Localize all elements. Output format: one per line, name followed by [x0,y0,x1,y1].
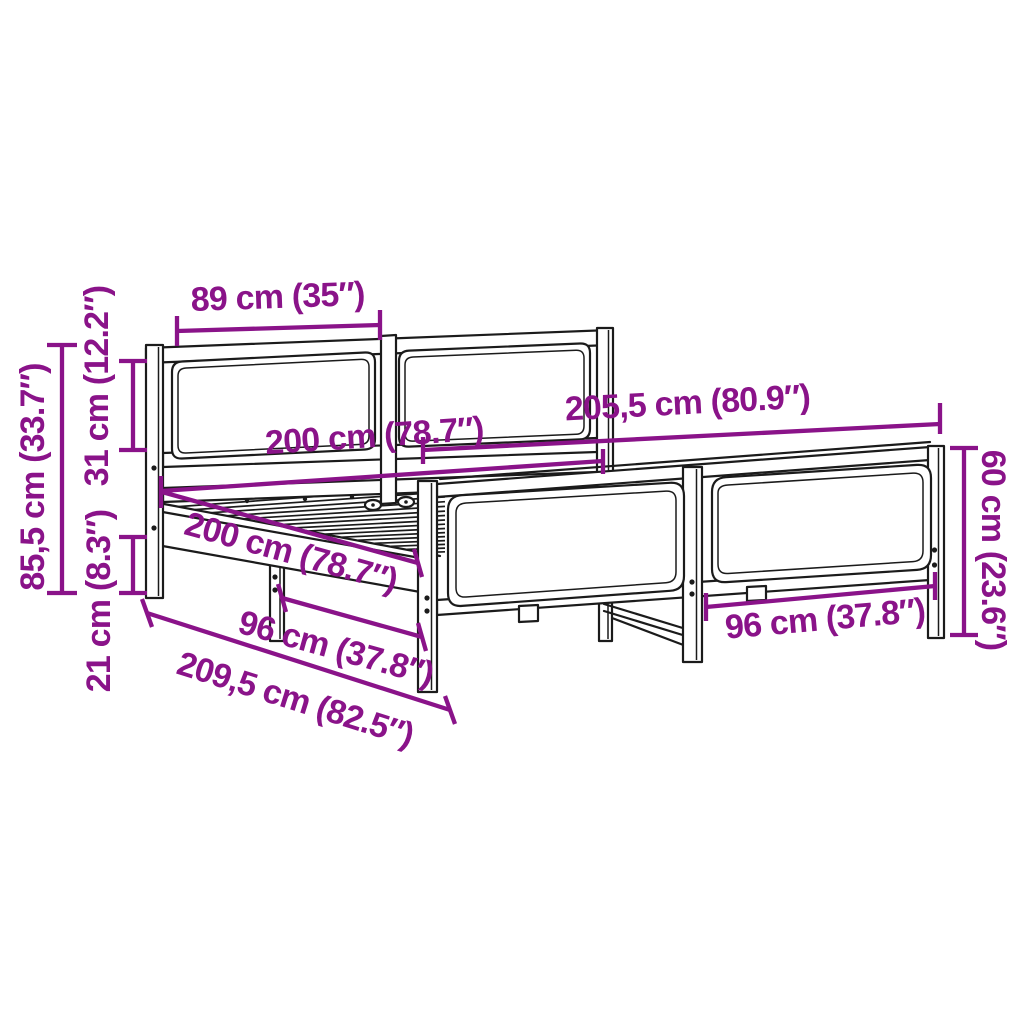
dim-label-headboard-panel-width: 89 cm (35″) [190,275,365,319]
dim-label-footboard-height: 60 cm (23.6″) [974,450,1012,651]
footboard-center-post [683,467,702,662]
dimension-diagram: 89 cm (35″) 85,5 cm (33.7″) 31 cm (12.2″… [0,0,1024,1024]
footboard-tab-left [519,605,538,622]
footboard-tab-right [747,586,766,601]
footboard-left-panel [448,483,684,606]
dim-label-headboard-total-height: 85,5 cm (33.7″) [14,363,52,590]
bed-frame-diagram: 89 cm (35″) 85,5 cm (33.7″) 31 cm (12.2″… [0,0,1024,1024]
footboard-right-panel [712,465,931,582]
dim-label-headboard-panel-height: 31 cm (12.2″) [78,286,116,487]
dim-label-under-frame-clearance: 21 cm (8.3″) [80,510,118,692]
headboard-left-post [146,345,163,598]
